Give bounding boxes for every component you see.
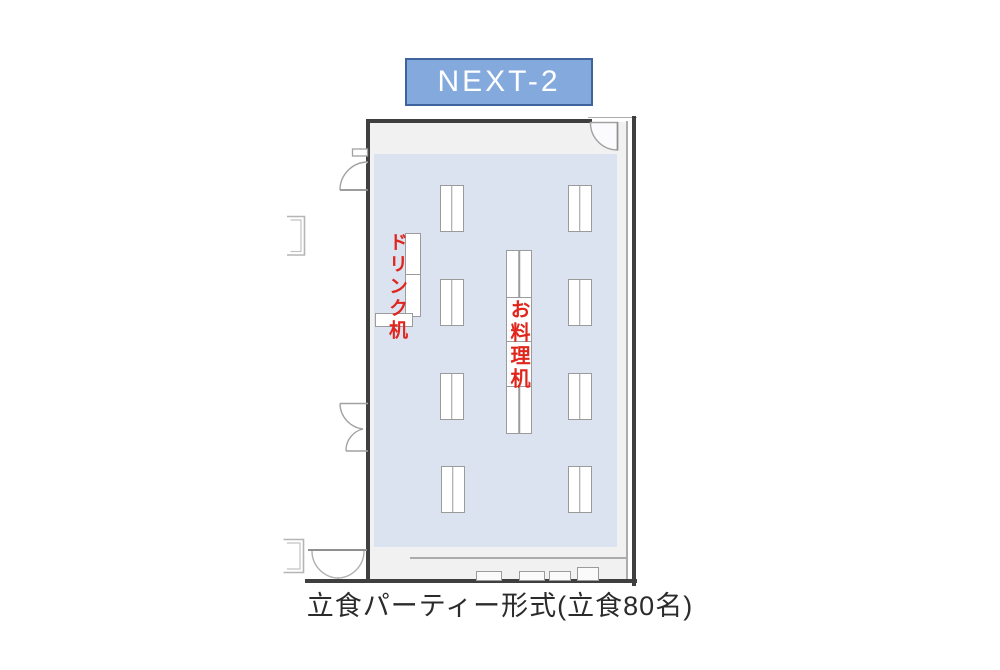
room-name-text: NEXT-2 <box>437 65 560 99</box>
wall-right-inner-line <box>626 121 628 580</box>
table-center-divider <box>518 386 520 434</box>
door-bottom-left-swing-b <box>337 551 364 578</box>
door-left-lower-swing-bottom <box>346 429 363 451</box>
pillar-bracket-upper <box>287 217 305 256</box>
table-center-divider <box>451 279 453 326</box>
table-center-divider <box>579 185 581 232</box>
guest-table <box>568 279 592 326</box>
pillar-bracket-upper-inner <box>291 220 302 252</box>
guest-table <box>568 373 592 420</box>
wall-left <box>366 119 370 583</box>
drink-table-label: ドリンク机 <box>387 232 406 342</box>
table-center-divider <box>579 279 581 326</box>
pillar-bracket-lower-inner <box>287 543 300 569</box>
guest-table <box>441 466 465 513</box>
drink-table-segment <box>405 233 421 275</box>
table-center-divider <box>452 466 454 513</box>
table-center-divider <box>451 185 453 232</box>
food-table-label: お料理机 <box>508 299 528 391</box>
table-center-divider <box>518 250 520 298</box>
wall-top <box>366 119 592 123</box>
drink-table-segment <box>405 274 421 317</box>
layout-caption: 立食パーティー形式(立食80名) <box>0 584 1000 623</box>
guest-table <box>440 373 464 420</box>
room-name-plate: NEXT-2 <box>405 58 593 106</box>
wall-right-outer <box>632 116 636 586</box>
door-header-line <box>588 117 637 119</box>
floorplan-canvas: NEXT-2 ドリンク机 お料理机 立食パーティー形 <box>0 0 1000 670</box>
table-center-divider <box>451 373 453 420</box>
door-left-upper-swing <box>340 162 368 190</box>
wall-notch <box>549 571 571 581</box>
guest-table <box>568 466 592 513</box>
guest-table <box>440 185 464 232</box>
wall-notch <box>519 571 545 581</box>
wall-notch <box>476 571 502 581</box>
door-left-lower-swing-top <box>340 404 363 430</box>
table-center-divider <box>579 466 581 513</box>
food-table-segment <box>506 250 532 298</box>
guest-table <box>568 185 592 232</box>
food-table-segment <box>506 386 532 434</box>
door-bottom-left-swing-a <box>312 551 339 578</box>
wall-bottom-inner-line <box>410 557 627 559</box>
table-center-divider <box>579 373 581 420</box>
wall-notch <box>577 567 599 581</box>
pillar-bracket-lower <box>284 540 304 573</box>
guest-table <box>440 279 464 326</box>
